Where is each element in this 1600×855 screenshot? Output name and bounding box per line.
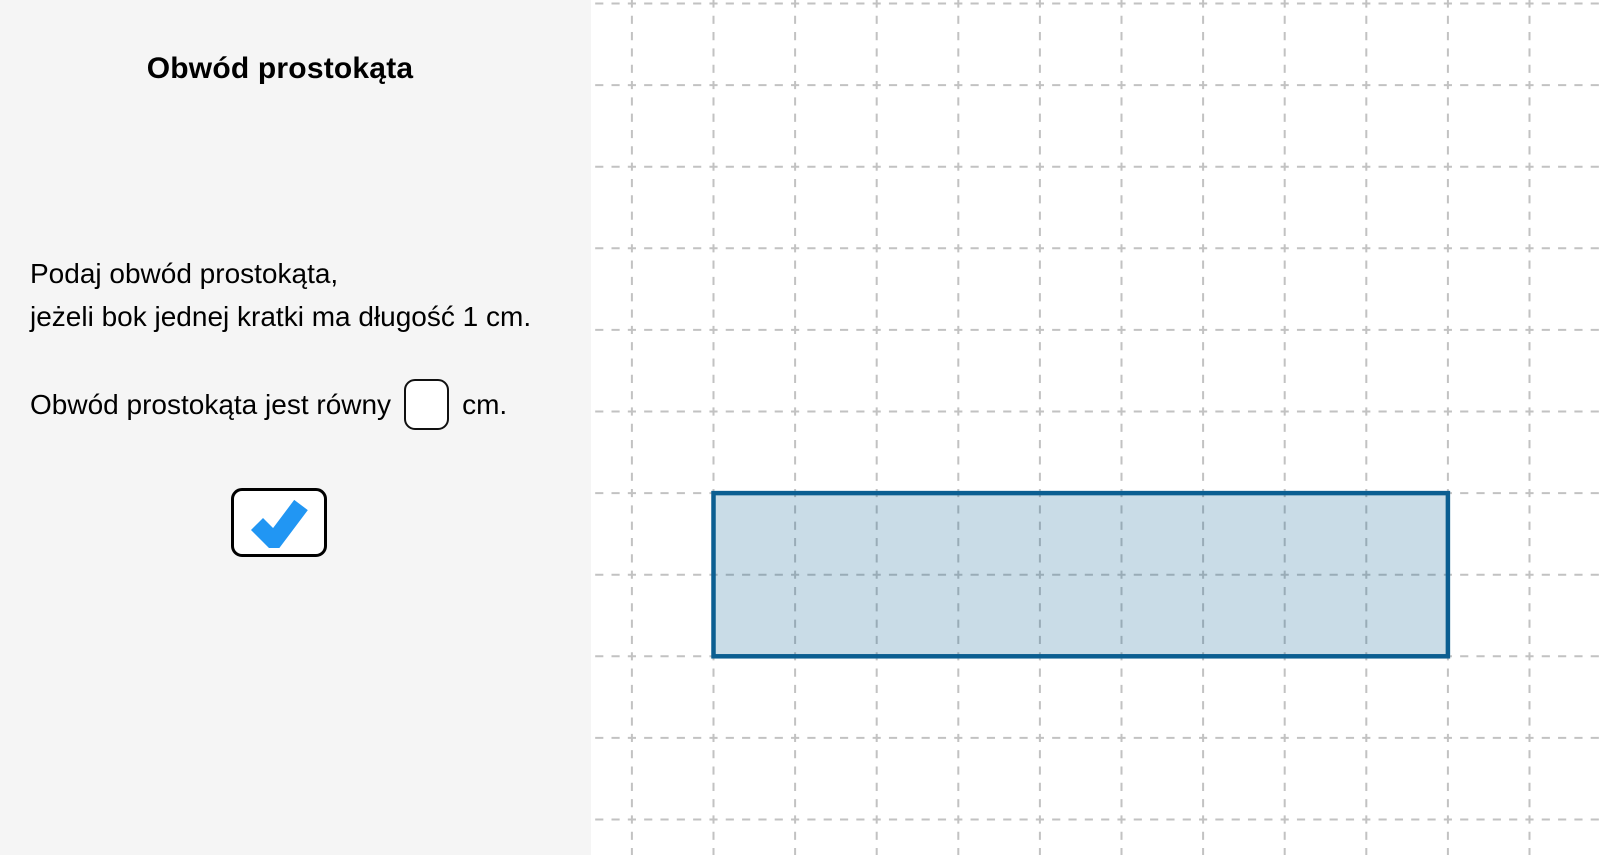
task-panel: Obwód prostokąta Podaj obwód prostokąta,… [0,0,591,855]
check-icon [248,498,310,548]
check-button[interactable] [231,488,327,557]
answer-unit: cm. [462,389,507,421]
grid-canvas [591,0,1600,855]
panel-title: Obwód prostokąta [0,52,560,86]
applet: Obwód prostokąta Podaj obwód prostokąta,… [0,0,1600,855]
graphics-view[interactable] [591,0,1600,855]
instruction-line-2: jeżeli bok jednej kratki ma długość 1 cm… [30,295,575,338]
blue-rectangle-shape[interactable] [714,493,1448,656]
answer-row: Obwód prostokąta jest równy cm. [30,379,507,430]
task-instruction: Podaj obwód prostokąta, jeżeli bok jedne… [30,252,575,338]
answer-prompt: Obwód prostokąta jest równy [30,389,391,421]
answer-input[interactable] [404,379,449,430]
instruction-line-1: Podaj obwód prostokąta, [30,252,575,295]
